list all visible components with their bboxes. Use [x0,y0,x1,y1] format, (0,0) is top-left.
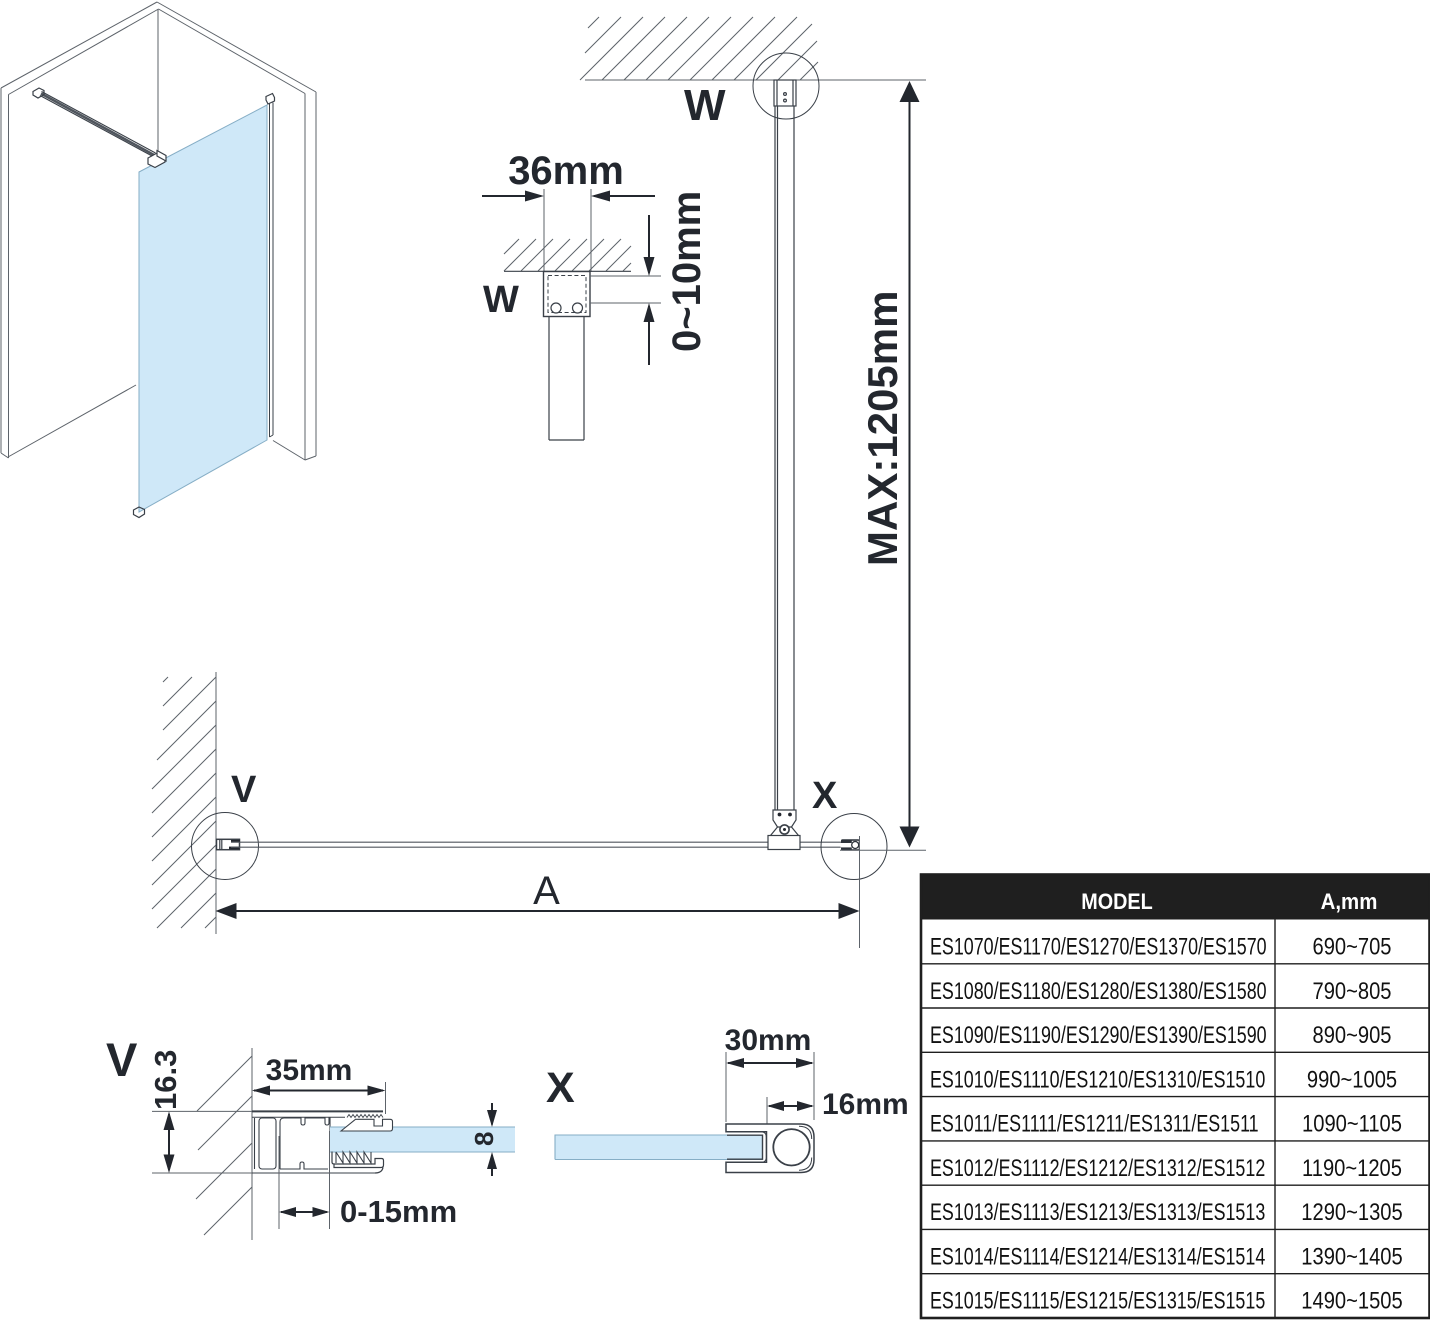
svg-text:A: A [533,869,560,913]
svg-text:1090~1105: 1090~1105 [1302,1110,1402,1137]
svg-text:W: W [684,81,726,130]
svg-text:X: X [812,775,838,817]
svg-text:MODEL: MODEL [1081,890,1153,914]
svg-text:MAX:1205mm: MAX:1205mm [859,291,906,566]
svg-text:ES1080/ES1180/ES1280/ES1380/ES: ES1080/ES1180/ES1280/ES1380/ES1580 [930,978,1267,1004]
svg-text:ES1010/ES1110/ES1210/ES1310/ES: ES1010/ES1110/ES1210/ES1310/ES1510 [930,1067,1265,1093]
svg-text:ES1013/ES1113/ES1213/ES1313/ES: ES1013/ES1113/ES1213/ES1313/ES1513 [930,1200,1265,1226]
svg-text:1390~1405: 1390~1405 [1301,1243,1402,1270]
svg-text:V: V [106,1033,138,1086]
svg-text:W: W [483,279,519,321]
svg-text:ES1070/ES1170/ES1270/ES1370/ES: ES1070/ES1170/ES1270/ES1370/ES1570 [930,934,1267,960]
svg-text:30mm: 30mm [725,1024,812,1057]
svg-text:V: V [231,769,257,811]
svg-text:ES1090/ES1190/ES1290/ES1390/ES: ES1090/ES1190/ES1290/ES1390/ES1590 [930,1023,1267,1049]
svg-text:36mm: 36mm [508,149,624,193]
svg-text:1190~1205: 1190~1205 [1302,1154,1402,1181]
svg-text:790~805: 790~805 [1312,977,1391,1004]
svg-text:990~1005: 990~1005 [1307,1066,1397,1093]
svg-text:ES1012/ES1112/ES1212/ES1312/ES: ES1012/ES1112/ES1212/ES1312/ES1512 [930,1155,1265,1181]
svg-text:ES1014/ES1114/ES1214/ES1314/ES: ES1014/ES1114/ES1214/ES1314/ES1514 [930,1244,1265,1270]
svg-text:A,mm: A,mm [1321,889,1378,914]
svg-text:16mm: 16mm [822,1088,909,1121]
svg-text:ES1011/ES1111/ES1211/ES1311/ES: ES1011/ES1111/ES1211/ES1311/ES1511 [930,1111,1259,1137]
svg-text:0-15mm: 0-15mm [340,1194,457,1229]
svg-text:X: X [546,1064,575,1112]
svg-text:16.3: 16.3 [148,1050,183,1110]
svg-text:690~705: 690~705 [1312,933,1391,960]
svg-text:8: 8 [469,1132,499,1146]
svg-text:ES1015/ES1115/ES1215/ES1315/ES: ES1015/ES1115/ES1215/ES1315/ES1515 [930,1288,1265,1314]
svg-text:1290~1305: 1290~1305 [1301,1199,1402,1226]
svg-text:0~10mm: 0~10mm [665,191,709,352]
svg-text:1490~1505: 1490~1505 [1301,1287,1402,1314]
svg-text:890~905: 890~905 [1312,1021,1391,1048]
svg-text:35mm: 35mm [266,1054,353,1087]
